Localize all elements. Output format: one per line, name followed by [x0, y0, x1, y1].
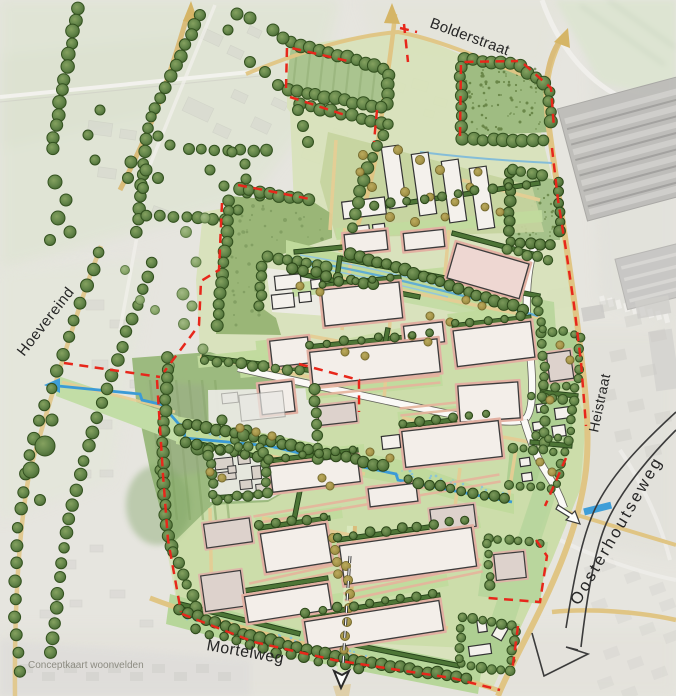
svg-text:Conceptkaart woonvelden: Conceptkaart woonvelden: [28, 660, 144, 671]
